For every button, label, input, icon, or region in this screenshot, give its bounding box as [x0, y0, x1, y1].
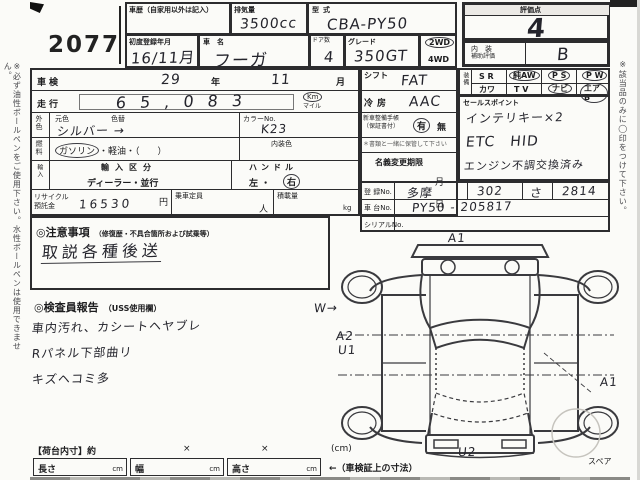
shift-value: FAT — [400, 73, 428, 89]
car-name-cell: 車 名 フーガ — [198, 34, 310, 68]
eq-tv: T V — [514, 85, 528, 94]
interior-color-divider — [239, 138, 240, 161]
capacity-divider — [171, 190, 172, 216]
ac-row: 冷房 AAC — [360, 90, 458, 113]
sales-line-2: ETC HID — [465, 130, 540, 151]
width-cm: cm — [209, 465, 220, 473]
shaken-year-label: 年 — [211, 75, 220, 88]
model-cell: 型式 CBA-PY50 — [307, 2, 457, 35]
eq-navi: ナビ — [548, 83, 572, 94]
fuel-options: ガソリン・軽油・（ ） — [55, 143, 167, 158]
doors-cell: ドア数 4 — [309, 34, 345, 68]
cargo-x1: × — [183, 444, 191, 454]
drive-cell: 2WD 4WD — [419, 34, 457, 68]
lot-number: 2077 — [48, 32, 120, 58]
reg-cell-div2 — [522, 183, 523, 199]
book-label-1: 新車整備手帳 — [363, 116, 399, 123]
height-cell: 高さ cm — [227, 458, 321, 476]
grade-cell: グレード 350GT — [344, 34, 420, 68]
displacement-label: 排気量 — [234, 6, 255, 14]
interior-box: 内 装 補助評価 B — [462, 40, 610, 67]
ext-color-divider — [49, 113, 50, 138]
annotation-left-u1: U1 — [337, 343, 357, 357]
chassis-label: 車 台No. — [364, 204, 392, 212]
fuel-gasoline: ガソリン — [55, 143, 99, 158]
interior-label-2: 補助評価 — [471, 54, 495, 61]
caution-box: ◎注意事項 （修復歴・不具合箇所および試乗等） 取説各種後送 — [30, 216, 330, 290]
model-value: CBA-PY50 — [326, 14, 409, 33]
length-cm: cm — [112, 465, 123, 473]
handle-right: 右 — [283, 174, 300, 189]
inspector-line-3: キズヘコミ多 — [31, 369, 111, 387]
inspector-label: ◎検査員報告 — [34, 301, 99, 314]
book-yes: 有 — [413, 118, 430, 133]
shaken-label: 車検 — [37, 75, 61, 88]
annotation-left-w: W→ — [313, 301, 338, 315]
eq-pw: P W — [582, 70, 607, 81]
score-label: 評価点 — [520, 6, 541, 14]
cargo-dims: 【荷台内寸】約 × × (cm) 長さ cm 幅 cm 高さ cm ←（車検証上… — [33, 444, 633, 480]
mileage-row: 走行 65,083 Km マイル — [30, 90, 360, 113]
eq-div-v1 — [506, 70, 507, 96]
history-cell: 車歴（自家用以外は記入） — [125, 2, 231, 35]
car-name-label: 車 名 — [203, 38, 224, 46]
ext-color-side-label: 外色 — [35, 115, 43, 137]
book-no: 無 — [437, 120, 446, 133]
reg-value-number: 2814 — [561, 184, 597, 199]
shaken-row: 車検 29 年 11 月 — [30, 68, 360, 91]
scan-streak — [610, 0, 640, 7]
import-side-label: 輸入 — [35, 164, 42, 188]
color-no-divider — [239, 113, 240, 138]
caution-label: ◎注意事項 — [36, 226, 90, 239]
import-label: 輸入区分 — [101, 163, 157, 172]
first-reg-label: 初度登録年月 — [129, 38, 171, 46]
displacement-cell: 排気量 3500cc — [230, 2, 308, 35]
left-vertical-note: ※必ず油性ボールペンをご使用下さい。水性ボールペンは使用できません。 — [3, 62, 21, 362]
model-label: 型式 — [312, 6, 334, 14]
inspector-report: ◎検査員報告 （USS使用欄） 車内汚れ、カシートヘヤブレ Rパネル下部曲リ キ… — [30, 296, 330, 426]
eq-div-v3 — [576, 70, 577, 96]
inspector-line-1: 車内汚れ、カシートヘヤブレ — [31, 317, 202, 337]
ac-value: AAC — [408, 94, 442, 111]
inspector-header: ◎検査員報告 （USS使用欄） — [34, 296, 161, 315]
shaken-month: 11 — [270, 72, 291, 88]
interior-value: B — [556, 45, 570, 65]
drive-4wd: 4WD — [428, 55, 449, 64]
registration-block: 登 録No. 車 台No. シリアルNo. 多摩 302 さ 2814 PY50… — [360, 181, 610, 232]
car-diagram: A1 W→ A2 U1 A1 U2 スペア — [330, 235, 622, 465]
doors-value: 4 — [323, 48, 335, 66]
annotation-left-a2: A2 — [335, 329, 354, 343]
shift-label: シフト — [364, 71, 388, 80]
book-note-row: ＊書類と一緒に保管して下さい — [360, 137, 458, 153]
color-no-value: K23 — [260, 122, 287, 136]
bracket-line — [119, 6, 121, 64]
import-value: ディーラー・並行 — [87, 176, 158, 189]
reg-value-class: 302 — [476, 184, 503, 198]
sales-line-3: エンジン不調交換済み — [463, 156, 585, 174]
grade-label: グレード — [348, 38, 376, 46]
fuel-side-label: 燃料 — [35, 140, 43, 160]
interior-label-1: 内 装 — [471, 45, 492, 53]
history-label: 車歴（自家用以外は記入） — [129, 6, 213, 14]
height-cm: cm — [306, 465, 317, 473]
import-row: 輸入 輸入区分 ディーラー・並行 ハンドル 左 ・ 右 — [30, 160, 360, 190]
fuel-divider — [49, 138, 50, 161]
corner-mark — [30, 2, 44, 13]
interior-label-cell: 内 装 補助評価 — [464, 42, 526, 65]
load-unit: kg — [343, 204, 352, 212]
cargo-unit: (cm) — [331, 444, 352, 454]
equipment-grid: 装備 S R 純AW P S P W カワ T V ナビ エアB — [458, 68, 610, 96]
reg-cell-div3 — [552, 183, 553, 199]
sales-point-box: セールスポイント インテリキー×2 ETC HID エンジン不調交換済み — [458, 95, 610, 181]
caution-line: 取説各種後送 — [41, 237, 163, 264]
reg-value-kana: さ — [529, 184, 544, 201]
mileage-label: 走行 — [37, 97, 61, 110]
ext-color-row: 外色 元色 色替 シルバー → カラーNo. K23 — [30, 112, 360, 138]
handle-label: ハンドル — [249, 163, 297, 172]
sales-line-1: インテリキー×2 — [465, 108, 564, 127]
shaken-month-label: 月 — [336, 75, 345, 88]
recycle-value: 16530 — [78, 197, 133, 212]
sales-point-label: セールスポイント — [463, 99, 519, 107]
width-cell: 幅 cm — [130, 458, 224, 476]
cargo-x2: × — [261, 444, 269, 454]
cargo-label: 【荷台内寸】約 — [33, 444, 96, 457]
handle-left: 左 ・ — [249, 176, 270, 189]
shaken-year: 29 — [160, 72, 181, 88]
displacement-value: 3500cc — [239, 16, 298, 33]
width-label: 幅 — [135, 462, 144, 475]
inspector-label-sub: （USS使用欄） — [104, 304, 162, 313]
load-label: 積載量 — [277, 192, 298, 200]
shift-row: シフト FAT — [360, 68, 458, 91]
interior-color-label: 内装色 — [271, 140, 292, 148]
equipment-side-label: 装備 — [461, 72, 468, 94]
handle-divider — [231, 161, 232, 190]
doors-label: ドア数 — [312, 38, 330, 45]
reg-value-area: 多摩 — [406, 184, 434, 201]
recycle-row: リサイクル 預託金 16530 円 乗車定員 人 積載量 kg — [30, 189, 360, 216]
transfer-label: 名義変更期限 — [375, 158, 423, 167]
eq-sr: S R — [479, 72, 494, 81]
reg-label: 登 録No. — [364, 188, 392, 196]
eq-kawa: カワ — [479, 85, 495, 94]
grade-value: 350GT — [353, 47, 409, 66]
auction-sheet-page: ※必ず油性ボールペンをご使用下さい。水性ボールペンは使用できません。 2077 … — [0, 0, 640, 480]
height-label: 高さ — [232, 462, 250, 475]
first-reg-cell: 初度登録年月 16/11月 — [125, 34, 199, 68]
import-divider — [49, 161, 50, 190]
length-label: 長さ — [38, 462, 56, 475]
capacity-label: 乗車定員 — [175, 192, 203, 200]
ac-label: 冷房 — [364, 96, 390, 109]
load-divider — [273, 190, 274, 216]
fuel-row: 燃料 ガソリン・軽油・（ ） 内装色 — [30, 137, 360, 161]
mileage-unit-mile: マイル — [303, 104, 321, 111]
chassis-value: PY50 - 205817 — [411, 199, 513, 215]
annotation-top: A1 — [447, 231, 466, 245]
recycle-unit: 円 — [159, 195, 168, 208]
eq-ps: P S — [548, 70, 570, 81]
dims-note: ←（車検証上の寸法） — [329, 461, 418, 474]
eq-div-v2 — [541, 70, 542, 96]
recycle-label-2: 預託金 — [34, 202, 55, 210]
book-row: 新車整備手帳 （保証書付） 有 無 — [360, 112, 458, 138]
mileage-value: 65,083 — [115, 91, 257, 112]
score-box: 評価点 4 — [462, 2, 610, 41]
length-cell: 長さ cm — [33, 458, 127, 476]
first-reg-value: 16/11月 — [130, 46, 196, 68]
eq-aw: 純AW — [509, 70, 540, 81]
serial-label: シリアルNo. — [364, 221, 404, 229]
fuel-rest: ・軽油・（ ） — [99, 147, 167, 157]
book-note: ＊書類と一緒に保管して下さい — [363, 142, 447, 149]
reg-div-h2 — [362, 216, 610, 217]
car-outline-svg — [330, 235, 622, 465]
reg-cell-div1 — [467, 183, 468, 199]
book-label-2: （保証書付） — [363, 124, 399, 131]
mileage-unit-km: Km — [303, 92, 322, 102]
drive-2wd: 2WD — [425, 37, 454, 48]
annotation-right: A1 — [599, 375, 618, 389]
recycle-label-1: リサイクル — [34, 193, 69, 201]
inspector-line-2: Rパネル下部曲リ — [31, 343, 133, 362]
capacity-unit: 人 — [259, 202, 268, 215]
